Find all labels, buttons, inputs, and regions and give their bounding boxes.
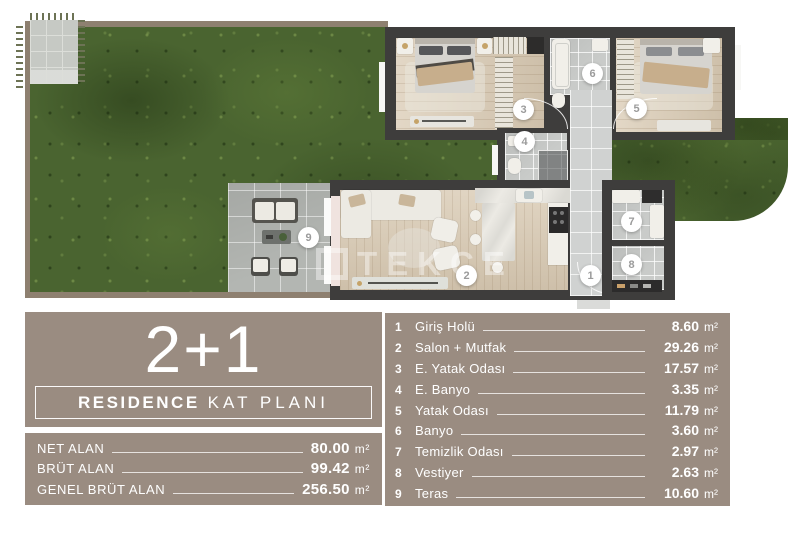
room-marker-8: 8	[621, 254, 642, 275]
window-sill	[492, 145, 498, 175]
dresser-bench	[410, 116, 474, 127]
room-row: 8 Vestiyer 2.63 m²	[395, 464, 718, 480]
area-row: BRÜT ALAN 99.42 m²	[37, 460, 370, 477]
leader-line	[512, 455, 645, 456]
area-label: BRÜT ALAN	[37, 461, 114, 476]
leader-line	[483, 330, 645, 331]
dark-cabinet	[527, 37, 544, 54]
room-area-unit: m²	[704, 362, 718, 376]
room-number: 3	[395, 362, 415, 376]
shower	[538, 150, 568, 184]
plan-subtitle-light: KAT PLANI	[208, 393, 329, 413]
wardrobe-top	[493, 37, 526, 54]
bed-double	[640, 39, 712, 94]
ottoman	[251, 257, 270, 276]
hedge-row-left	[16, 26, 23, 88]
cooktop	[549, 207, 568, 233]
bathtub	[552, 39, 570, 89]
bed-pillow	[646, 47, 672, 56]
room-row: 1 Giriş Holü 8.60 m²	[395, 318, 718, 334]
room-number: 5	[395, 404, 415, 418]
room-marker-7: 7	[621, 211, 642, 232]
room-row: 9 Teras 10.60 m²	[395, 485, 718, 501]
area-value: 256.50	[302, 481, 350, 498]
bed-pillow	[419, 46, 443, 55]
window-sill	[735, 45, 741, 90]
leader-line	[112, 452, 302, 453]
room-area-value: 17.57	[653, 360, 699, 376]
room-area-unit: m²	[704, 383, 718, 397]
watermark: TEKCE	[316, 247, 514, 280]
area-summary-panel: NET ALAN 80.00 m² BRÜT ALAN 99.42 m² GEN…	[25, 433, 382, 505]
leader-line	[122, 472, 302, 473]
room-marker-5: 5	[626, 98, 647, 119]
leader-line	[514, 351, 645, 352]
dining-chair	[470, 234, 481, 245]
room-name: Yatak Odası	[415, 403, 489, 418]
room-number: 4	[395, 383, 415, 397]
leader-line	[456, 497, 645, 498]
nightstand	[477, 38, 492, 54]
ottoman	[279, 257, 298, 276]
window-bench	[657, 120, 711, 131]
nightstand	[703, 38, 720, 53]
bed-blanket	[642, 62, 710, 89]
room-area-unit: m²	[704, 341, 718, 355]
room-number: 2	[395, 341, 415, 355]
area-unit: m²	[355, 462, 370, 476]
washer	[612, 190, 640, 203]
room-row: 6 Banyo 3.60 m²	[395, 422, 718, 438]
area-value: 99.42	[311, 460, 350, 477]
room-name: Vestiyer	[415, 465, 464, 480]
bed-pillow	[678, 47, 704, 56]
hedge-row-top	[30, 13, 78, 20]
room-row: 7 Temizlik Odası 2.97 m²	[395, 443, 718, 459]
plan-subtitle-box: RESIDENCE KAT PLANI	[35, 386, 372, 419]
leader-line	[478, 393, 645, 394]
wardrobe-side	[617, 39, 634, 99]
area-label: NET ALAN	[37, 441, 104, 456]
kitchen-sink-counter	[516, 189, 542, 202]
garden-wall-bottom	[25, 292, 332, 298]
room-area-value: 3.35	[653, 381, 699, 397]
outdoor-sofa	[252, 198, 298, 223]
room-area-value: 2.97	[653, 443, 699, 459]
room-row: 3 E. Yatak Odası 17.57 m²	[395, 360, 718, 376]
room-marker-9: 9	[298, 227, 319, 248]
utility-block	[602, 180, 675, 300]
room-row: 4 E. Banyo 3.35 m²	[395, 381, 718, 397]
room-area-unit: m²	[704, 424, 718, 438]
bathroom-sink	[592, 39, 608, 51]
watermark-logo	[316, 248, 348, 280]
room-name: Temizlik Odası	[415, 444, 504, 459]
room-row: 5 Yatak Odası 11.79 m²	[395, 402, 718, 418]
room-area-value: 8.60	[653, 318, 699, 334]
bed-pillow	[447, 46, 471, 55]
sofa-cushion	[276, 202, 295, 220]
room-number: 6	[395, 424, 415, 438]
room-marker-2: 2	[456, 265, 477, 286]
room-marker-6: 6	[582, 63, 603, 84]
area-value: 80.00	[311, 440, 350, 457]
type-panel: 2+1 RESIDENCE KAT PLANI	[25, 312, 382, 427]
room-name: Teras	[415, 486, 448, 501]
headboard	[640, 39, 712, 45]
room-marker-1: 1	[580, 265, 601, 286]
room-marker-3: 3	[513, 99, 534, 120]
watermark-text: TEKCE	[357, 247, 514, 280]
room-name: E. Yatak Odası	[415, 361, 505, 376]
shoe-rack	[612, 280, 662, 292]
room-area-unit: m²	[704, 404, 718, 418]
area-label: GENEL BRÜT ALAN	[37, 482, 165, 497]
area-unit: m²	[355, 483, 370, 497]
floor-plan-page: TEKCE 1 2 3 4 5 6 7 8 9 2+1 RESIDENCE KA…	[0, 0, 800, 533]
room-area-value: 3.60	[653, 422, 699, 438]
room-area-unit: m²	[704, 445, 718, 459]
room-number: 1	[395, 320, 415, 334]
window-sill	[324, 198, 331, 236]
area-row: GENEL BRÜT ALAN 256.50 m²	[37, 481, 370, 498]
room-name: Banyo	[415, 423, 453, 438]
nightstand	[397, 38, 413, 54]
room-area-value: 11.79	[653, 402, 699, 418]
room-area-unit: m²	[704, 320, 718, 334]
apartment-type-title: 2+1	[145, 312, 263, 386]
area-row: NET ALAN 80.00 m²	[37, 440, 370, 457]
sofa-cushion	[255, 202, 274, 220]
dark-counter	[642, 190, 662, 203]
table-decor	[266, 235, 273, 239]
right-garden-grass-top	[735, 118, 788, 140]
room-number: 7	[395, 445, 415, 459]
room-area-value: 10.60	[653, 485, 699, 501]
wardrobe-side	[495, 57, 513, 129]
hedge-row-right	[78, 20, 85, 86]
room-name: E. Banyo	[415, 382, 470, 397]
toilet	[508, 158, 521, 174]
room-row: 2 Salon + Mutfak 29.26 m²	[395, 339, 718, 355]
room-area-value: 2.63	[653, 464, 699, 480]
headboard	[415, 38, 475, 44]
entry-step	[577, 300, 610, 309]
window-sill	[379, 62, 385, 112]
leader-line	[173, 493, 294, 494]
coffee-table	[262, 230, 291, 244]
room-area-unit: m²	[704, 487, 718, 501]
leader-line	[472, 476, 645, 477]
plan-subtitle-bold: RESIDENCE	[78, 393, 200, 413]
room-name: Salon + Mutfak	[415, 340, 506, 355]
utility-cabinet	[650, 205, 664, 238]
leader-line	[497, 414, 645, 415]
room-area-value: 29.26	[653, 339, 699, 355]
dining-chair	[470, 210, 481, 221]
leader-line	[513, 372, 645, 373]
room-list-panel: 1 Giriş Holü 8.60 m² 2 Salon + Mutfak 29…	[385, 313, 730, 506]
room-number: 8	[395, 466, 415, 480]
bed-double	[415, 38, 475, 93]
leader-line	[461, 434, 645, 435]
table-decor	[279, 233, 287, 241]
room-area-unit: m²	[704, 466, 718, 480]
room-marker-4: 4	[514, 131, 535, 152]
area-unit: m²	[355, 442, 370, 456]
room-number: 9	[395, 487, 415, 501]
patio-tiles	[30, 20, 78, 84]
room-name: Giriş Holü	[415, 319, 475, 334]
floor-plan: TEKCE 1 2 3 4 5 6 7 8 9	[0, 0, 800, 311]
